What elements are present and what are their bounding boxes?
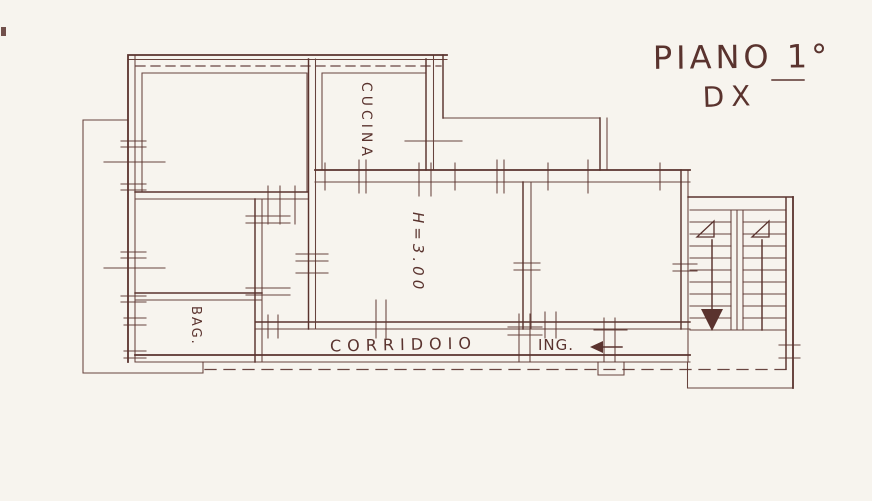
entrance-arrow xyxy=(590,341,603,353)
entrance-label: ING. xyxy=(538,336,574,354)
room-label-bathroom: BAG. xyxy=(188,306,203,346)
stair-down-arrow xyxy=(701,309,723,331)
side-title: DX xyxy=(687,79,772,115)
balcony-outline xyxy=(83,120,203,373)
scan-artifact xyxy=(1,27,6,36)
floor-title: PIANO 1° xyxy=(652,37,832,77)
room-label-kitchen: CUCINA xyxy=(358,82,374,160)
ceiling-height-label: H=3.00 xyxy=(409,212,427,293)
floorplan-page: PIANO 1° DX CUCINA H=3.00 BAG. CORRIDOIO… xyxy=(0,0,872,501)
corridor-label: CORRIDOIO xyxy=(330,333,477,355)
staircase xyxy=(690,210,800,358)
